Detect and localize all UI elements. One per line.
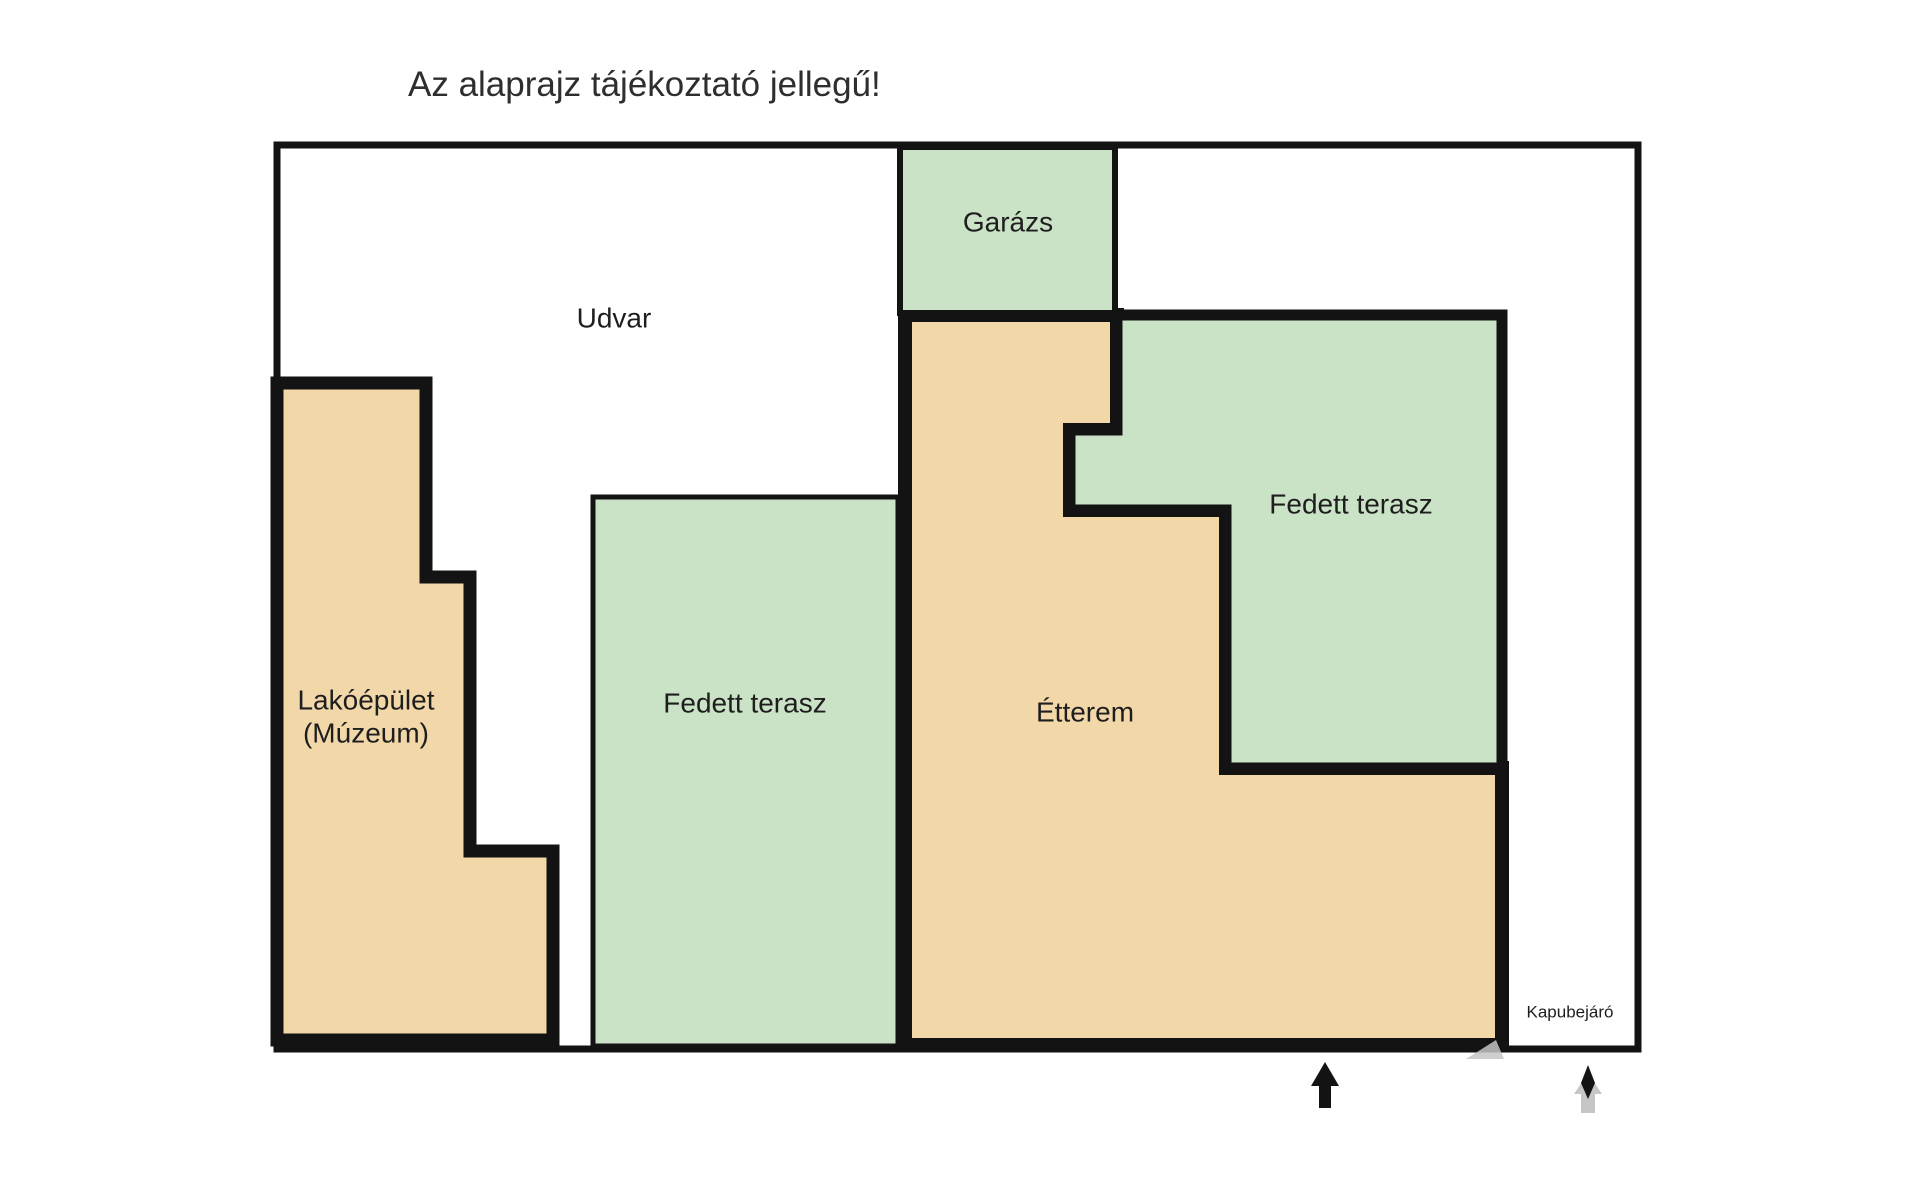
label-udvar: Udvar — [577, 303, 652, 334]
floor-plan-canvas: Az alaprajz tájékoztató jellegű! Udvar G… — [0, 0, 1920, 1200]
label-garazs: Garázs — [963, 207, 1053, 238]
floor-plan-page: Az alaprajz tájékoztató jellegű! Udvar G… — [0, 0, 1920, 1200]
label-fedett-terasz-left: Fedett terasz — [663, 688, 826, 719]
label-lakoepulet-line1: Lakóépület — [297, 685, 434, 716]
label-fedett-terasz-right: Fedett terasz — [1269, 489, 1432, 520]
room-fedett-terasz-left — [593, 497, 898, 1046]
label-kapubejaro: Kapubejáró — [1527, 1003, 1614, 1022]
entrance-arrow-icon — [1311, 1062, 1339, 1108]
label-lakoepulet-line2: (Múzeum) — [303, 718, 429, 749]
label-etterem: Étterem — [1036, 697, 1134, 728]
page-title: Az alaprajz tájékoztató jellegű! — [408, 65, 881, 104]
